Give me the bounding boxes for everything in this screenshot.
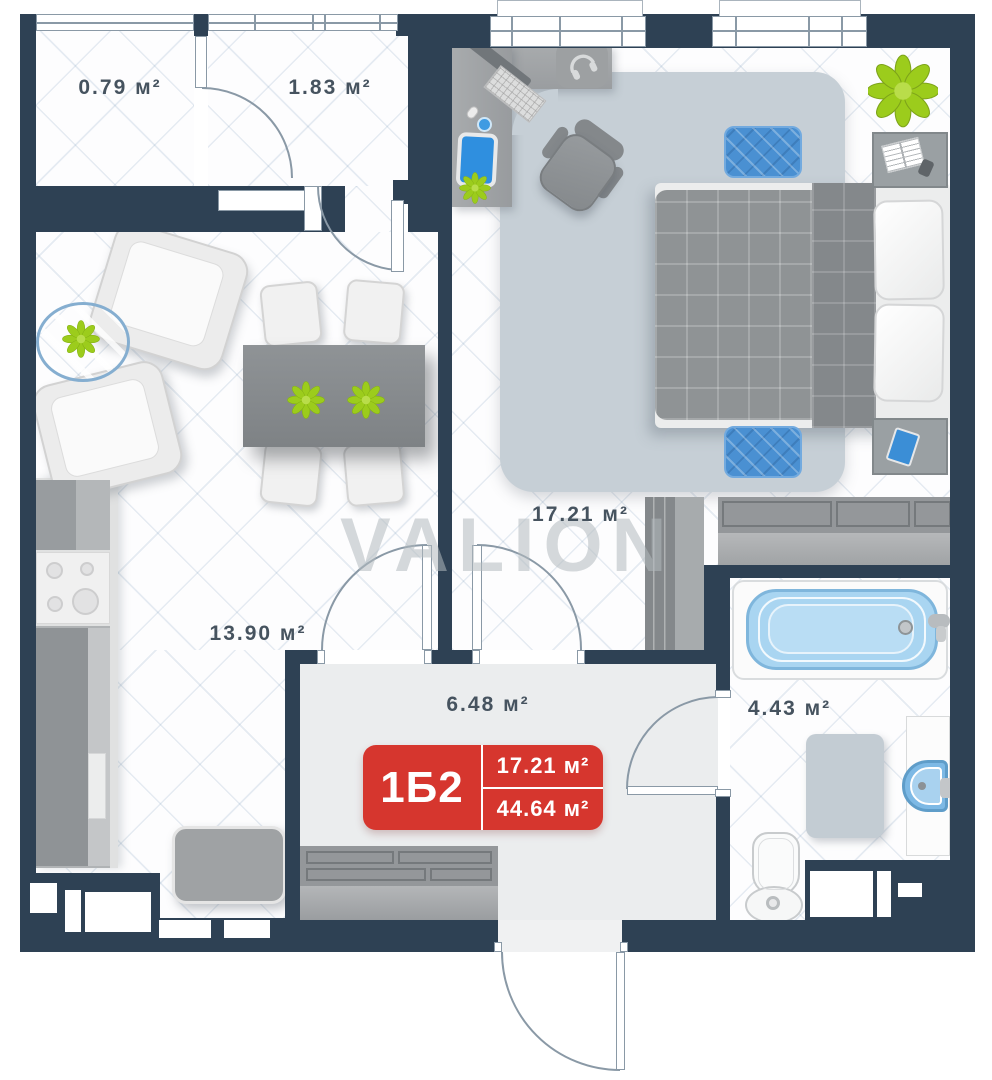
bed-blanket-fold — [812, 183, 876, 428]
dining-plant-icon — [347, 381, 385, 419]
window-sill — [719, 0, 861, 17]
desk-cup — [477, 117, 492, 132]
bed-pillow-bottom — [873, 303, 945, 402]
label-hallway-area: 6.48 м² — [408, 693, 568, 717]
wall-top-block — [408, 14, 452, 232]
balcony-window — [36, 14, 194, 31]
door-leaf-balcony — [195, 36, 207, 88]
bedroom-wardrobe-horizontal-2 — [718, 533, 955, 567]
badge-room-area: 17.21 м² — [483, 745, 603, 787]
wall-vent-cutout — [159, 920, 211, 938]
door-jamb — [715, 789, 731, 797]
door-jamb — [494, 942, 502, 952]
kitchen-cabinet-2 — [76, 480, 110, 550]
floor-plan: VALION 0.79 м² 1.83 м² 17.21 м² 13.90 м²… — [0, 0, 992, 1080]
wall-vent-cutout — [898, 883, 922, 897]
bedroom-wardrobe-vertical-2 — [675, 497, 704, 650]
bedroom-plant-icon — [868, 52, 938, 130]
wall-bath-left-top — [704, 567, 730, 664]
door-arc-entrance — [502, 952, 620, 1070]
bedroom-wardrobe-horizontal — [718, 497, 955, 533]
bedside-mat-bottom — [724, 426, 802, 478]
label-living-area: 13.90 м² — [178, 622, 338, 646]
label-balcony-area: 0.79 м² — [45, 76, 195, 100]
kitchen-counter-panel — [36, 628, 88, 866]
kitchen-counter-strip — [88, 628, 110, 866]
burner — [47, 596, 63, 612]
bedroom-window-2 — [712, 16, 867, 47]
door-leaf-bedroom — [472, 545, 482, 650]
wall-bath-top — [704, 565, 950, 578]
closet-window — [208, 14, 398, 31]
wall-bath-left-mid — [716, 664, 730, 692]
wall-bedroom-left — [438, 232, 452, 650]
dining-table — [243, 345, 425, 447]
wall-vent-cutout — [85, 892, 151, 932]
dining-chair — [259, 440, 323, 508]
bed-blanket — [655, 190, 815, 420]
dining-plant-icon — [287, 381, 325, 419]
balcony-floor — [36, 30, 194, 186]
kitchen-cabinet — [36, 480, 76, 550]
door-leaf-entrance — [616, 952, 625, 1070]
burner — [46, 562, 63, 579]
hallway-wardrobe — [300, 846, 498, 886]
bathtub-faucet-2 — [936, 626, 946, 642]
wardrobe-room-floor — [208, 30, 408, 186]
door-jamb — [317, 650, 325, 664]
bath-mat — [806, 734, 884, 838]
wall-bottom-2 — [300, 920, 498, 952]
wall-vent-cutout — [30, 883, 57, 913]
door-leaf-living — [422, 545, 432, 650]
window-sill — [497, 0, 643, 17]
dining-chair — [342, 279, 405, 346]
bedroom-window-1 — [490, 16, 646, 47]
wall-partition-top — [194, 14, 208, 36]
sink-inner — [910, 767, 942, 805]
label-bathroom-area: 4.43 м² — [712, 697, 867, 721]
wall-left — [20, 14, 36, 952]
bedside-mat-top — [724, 126, 802, 178]
toilet-flush-button — [766, 896, 780, 910]
bathtub-drain — [898, 620, 913, 635]
kitchen-mat — [172, 826, 286, 904]
label-wardrobe-room-area: 1.83 м² — [250, 76, 410, 100]
wall-hall-left — [285, 650, 300, 952]
sink-drain — [918, 782, 926, 790]
badge-total-area: 44.64 м² — [483, 787, 603, 831]
stove — [36, 552, 110, 624]
desk-plant-icon — [459, 172, 491, 204]
badge-areas: 17.21 м² 44.64 м² — [483, 745, 603, 830]
badge-unit-code: 1Б2 — [363, 745, 483, 830]
kitchen-counter-inset — [88, 753, 106, 819]
wall-right — [950, 14, 975, 952]
wall-vent-cutout — [810, 871, 873, 917]
wall-vent-cutout — [877, 871, 891, 917]
label-bedroom-area: 17.21 м² — [498, 503, 663, 527]
hallway-wardrobe-front — [300, 886, 498, 920]
door-leaf-bathroom — [627, 786, 718, 795]
wall-niche — [218, 190, 306, 211]
burner — [80, 562, 94, 576]
door-jamb — [577, 650, 585, 664]
entrance-floor-patch — [498, 920, 622, 952]
wall-vent-cutout — [224, 920, 270, 938]
dining-chair — [342, 441, 405, 508]
door-jamb — [424, 650, 432, 664]
bed-pillow-top — [873, 199, 945, 300]
unit-badge: 1Б2 17.21 м² 44.64 м² — [363, 745, 603, 830]
burner — [72, 588, 99, 615]
bathtub-ring-2 — [768, 604, 914, 654]
toilet-lid-inner — [758, 838, 794, 890]
dining-chair — [259, 280, 323, 348]
wall-vent-cutout — [65, 890, 81, 932]
door-jamb — [472, 650, 480, 664]
door-jamb — [620, 942, 628, 952]
coffee-table-plant-icon — [62, 320, 100, 358]
wall-hall-top-2 — [432, 650, 472, 664]
wall-niche — [304, 186, 322, 231]
door-leaf-closet — [391, 200, 404, 272]
